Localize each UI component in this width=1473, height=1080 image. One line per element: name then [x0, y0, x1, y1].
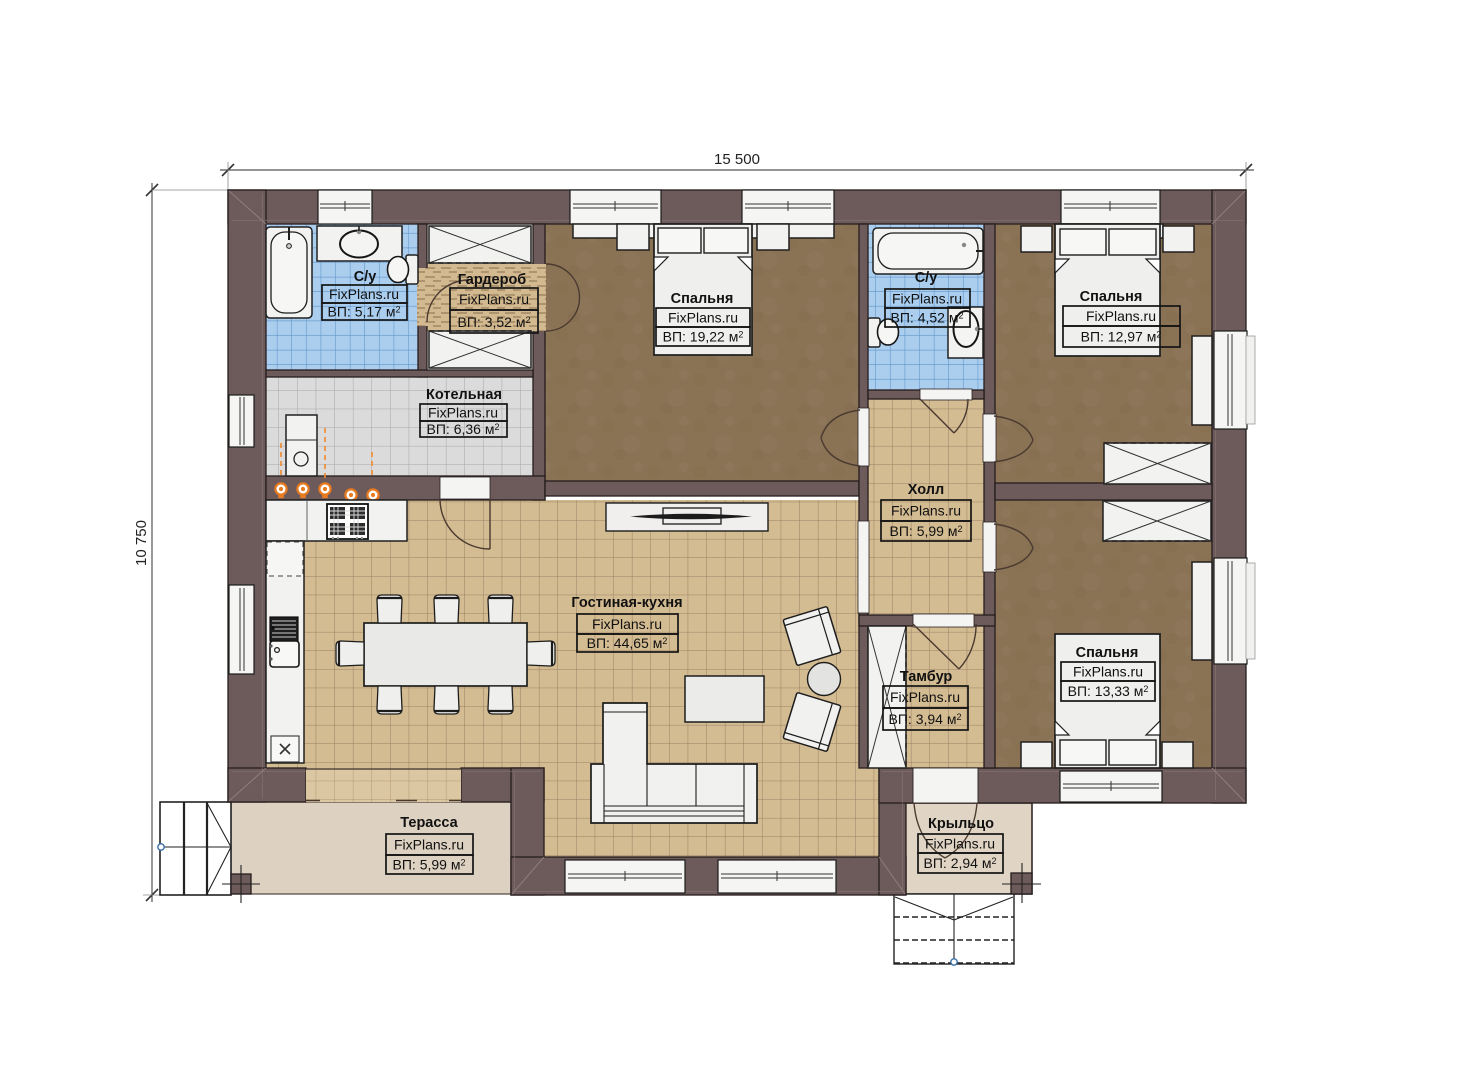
svg-text:Котельная: Котельная [426, 387, 502, 403]
svg-text:FixPlans.ru: FixPlans.ru [592, 616, 662, 632]
svg-text:ВП: 12,97 м2: ВП: 12,97 м2 [1081, 329, 1162, 345]
svg-text:ВП: 2,94 м2: ВП: 2,94 м2 [924, 855, 997, 871]
svg-text:Гостиная-кухня: Гостиная-кухня [571, 595, 682, 611]
svg-text:С/у: С/у [915, 270, 938, 286]
svg-text:FixPlans.ru: FixPlans.ru [668, 310, 738, 326]
svg-text:FixPlans.ru: FixPlans.ru [459, 291, 529, 307]
svg-text:Гардероб: Гардероб [458, 272, 527, 288]
svg-text:FixPlans.ru: FixPlans.ru [925, 836, 995, 852]
svg-text:Спальня: Спальня [1080, 289, 1143, 305]
svg-text:ВП: 44,65 м2: ВП: 44,65 м2 [587, 635, 668, 651]
svg-text:ВП: 5,99 м2: ВП: 5,99 м2 [890, 523, 963, 539]
svg-text:ВП: 19,22 м2: ВП: 19,22 м2 [663, 329, 744, 345]
svg-text:ВП: 3,52 м2: ВП: 3,52 м2 [458, 314, 531, 330]
svg-text:15 500: 15 500 [714, 151, 760, 168]
svg-text:Крыльцо: Крыльцо [928, 816, 994, 832]
svg-text:FixPlans.ru: FixPlans.ru [1073, 664, 1143, 680]
svg-text:FixPlans.ru: FixPlans.ru [394, 837, 464, 853]
svg-text:ВП: 6,36 м2: ВП: 6,36 м2 [427, 421, 500, 437]
svg-text:Спальня: Спальня [1076, 645, 1139, 661]
svg-text:FixPlans.ru: FixPlans.ru [1086, 308, 1156, 324]
svg-text:ВП: 3,94 м2: ВП: 3,94 м2 [889, 711, 962, 727]
svg-text:С/у: С/у [354, 269, 377, 285]
svg-text:Тамбур: Тамбур [900, 669, 953, 685]
svg-text:ВП: 5,17 м2: ВП: 5,17 м2 [328, 304, 401, 320]
svg-text:FixPlans.ru: FixPlans.ru [428, 405, 498, 421]
svg-text:FixPlans.ru: FixPlans.ru [329, 286, 399, 302]
svg-text:Холл: Холл [908, 482, 944, 498]
svg-text:FixPlans.ru: FixPlans.ru [890, 689, 960, 705]
svg-text:ВП: 13,33 м2: ВП: 13,33 м2 [1068, 683, 1149, 699]
svg-text:Спальня: Спальня [671, 291, 734, 307]
svg-text:ВП: 4,52 м2: ВП: 4,52 м2 [891, 310, 964, 326]
svg-text:10 750: 10 750 [133, 520, 150, 566]
svg-text:FixPlans.ru: FixPlans.ru [892, 291, 962, 307]
svg-text:Терасса: Терасса [400, 815, 458, 831]
svg-text:FixPlans.ru: FixPlans.ru [891, 503, 961, 519]
svg-text:ВП: 5,99 м2: ВП: 5,99 м2 [393, 857, 466, 873]
